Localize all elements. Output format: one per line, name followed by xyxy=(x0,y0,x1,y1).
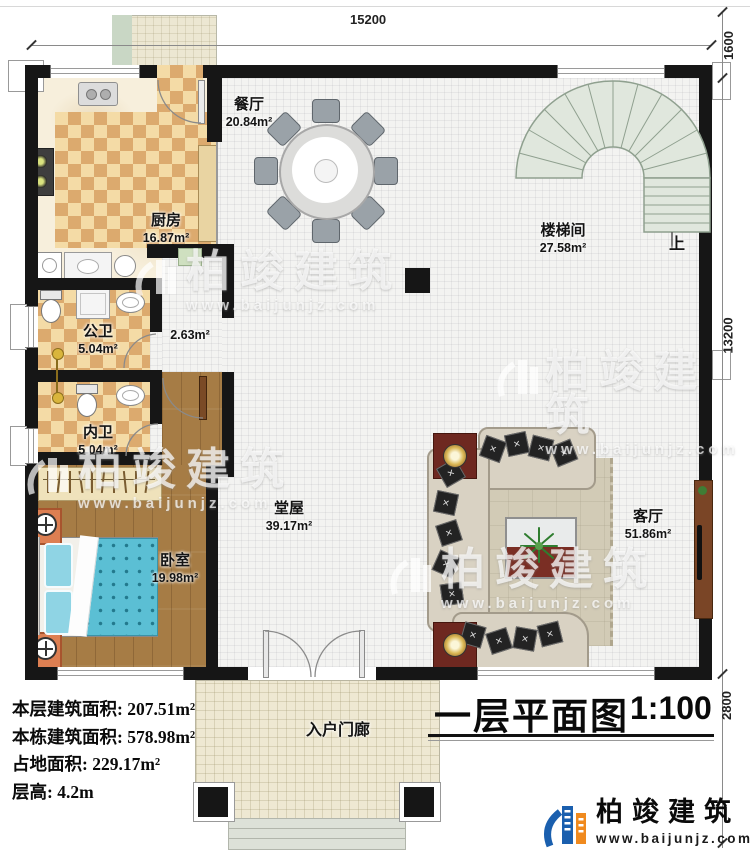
dining-chair xyxy=(254,157,278,185)
entry-door-leaf xyxy=(263,630,269,678)
room-label-kitchen: 厨房16.87m² xyxy=(143,212,190,247)
stat-height: 层高: 4.2m xyxy=(12,779,195,807)
brand-name: 柏竣建筑 xyxy=(596,798,750,828)
window-stairwell-top xyxy=(557,65,665,78)
stat-footprint: 占地面积: 229.17m² xyxy=(12,751,195,779)
table-lamp-icon xyxy=(443,444,467,468)
toilet-icon xyxy=(77,393,97,417)
room-label-porch: 入户门廊 xyxy=(306,722,370,740)
dining-chair xyxy=(374,157,398,185)
kitchen-door-leaf xyxy=(198,80,205,124)
wall-pubbath-right xyxy=(150,290,162,332)
kitchen-entry-tile xyxy=(157,65,203,112)
wall-bedroom-right xyxy=(206,465,218,668)
wall-kitchen-dining xyxy=(207,65,222,142)
table-lamp-icon xyxy=(443,633,467,657)
dining-chair xyxy=(312,219,340,243)
wall-kitchen-bath xyxy=(25,278,162,290)
title-underline-thin xyxy=(428,740,714,741)
stats-block: 本层建筑面积: 207.51m² 本栋建筑面积: 578.98m² 占地面积: … xyxy=(12,696,195,806)
tv-icon xyxy=(697,525,702,580)
dimension-line-right xyxy=(722,12,723,848)
sofa-pillow: ✕ xyxy=(504,431,530,457)
sink-icon xyxy=(116,292,145,313)
wall-bath-divider xyxy=(25,370,162,382)
stairs-up-label: 上 xyxy=(669,236,685,254)
wall-privbath-right xyxy=(150,382,162,424)
kitchen-counter xyxy=(64,252,112,280)
wall-hall-left-upper xyxy=(222,244,234,318)
sink-icon xyxy=(116,385,145,406)
brand-logo: 柏竣建筑 www.baijunjz.com xyxy=(540,798,750,852)
room-label-bedroom: 卧室19.98m² xyxy=(152,552,199,587)
dimension-right-top: 1600 xyxy=(721,31,736,60)
brand-website: www.baijunjz.com xyxy=(596,831,750,846)
brand-logo-icon xyxy=(540,798,588,852)
dimension-top: 15200 xyxy=(350,12,386,27)
wardrobe xyxy=(38,467,162,501)
corridor-floor xyxy=(162,258,222,372)
wall-hall-left-lower xyxy=(222,372,234,472)
coffee-table xyxy=(505,517,577,579)
sofa-pillow: ✕ xyxy=(433,490,459,516)
entry-door-leaf xyxy=(359,630,365,678)
window-living-bottom xyxy=(477,667,655,680)
kitchen-basin xyxy=(114,255,136,277)
towel-rail-knob xyxy=(52,392,64,404)
cabinet-plant-icon xyxy=(698,486,707,495)
room-label-dining: 餐厅20.84m² xyxy=(226,96,273,131)
porch-column xyxy=(404,787,434,817)
stat-building-area: 本栋建筑面积: 578.98m² xyxy=(12,724,195,752)
room-label-public-bath: 公卫5.04m² xyxy=(78,323,118,358)
plan-scale: 1:100 xyxy=(630,690,712,727)
room-label-stairwell: 楼梯间27.58m² xyxy=(540,222,587,257)
window-kitchen-top xyxy=(50,65,140,78)
kitchen-dining-open-line xyxy=(216,142,218,246)
sofa-pillow: ✕ xyxy=(512,626,537,651)
bed-pillow xyxy=(44,543,73,588)
bedroom-door-leaf xyxy=(199,376,207,420)
room-label-living: 客厅51.86m² xyxy=(625,508,672,543)
faucet-icon xyxy=(86,89,97,100)
faucet-icon xyxy=(100,89,111,100)
kitchen-tile-area xyxy=(55,112,216,248)
kitchen-tall-cabinet xyxy=(198,145,217,242)
bedroom-entry-floor xyxy=(162,372,222,467)
floor-plan-canvas: ✕ ✕ ✕ ✕ ✕ ✕ ✕ ✕ ✕ ✕ ✕ ✕ ✕ xyxy=(0,0,750,864)
title-underline-thick xyxy=(428,734,714,737)
window-bedroom-bottom xyxy=(57,667,184,680)
room-label-private-bath: 内卫5.04m² xyxy=(78,424,118,459)
dimension-right-middle: 13200 xyxy=(721,317,736,353)
shower-cabinet xyxy=(76,289,110,319)
dimension-line-top xyxy=(30,45,712,46)
dining-table-center xyxy=(314,159,338,183)
towel-rail-knob xyxy=(52,348,64,360)
dimension-right-bottom: 2800 xyxy=(719,691,734,720)
dining-chair xyxy=(312,99,340,123)
toilet-icon xyxy=(41,299,61,323)
window-private-bath xyxy=(25,428,38,464)
window-public-bath xyxy=(25,306,38,348)
porch-steps xyxy=(228,818,406,850)
porch-column xyxy=(198,787,228,817)
kitchen-washer xyxy=(36,252,62,280)
room-label-hall: 堂屋39.17m² xyxy=(266,500,313,535)
stat-floor-area: 本层建筑面积: 207.51m² xyxy=(12,696,195,724)
room-label-corridor-area: 2.63m² xyxy=(170,326,210,343)
sofa-pillow: ✕ xyxy=(440,582,465,607)
rear-porch-green-strip xyxy=(112,15,132,65)
roof-eave-line xyxy=(0,6,750,7)
green-counter xyxy=(178,248,202,266)
kitchen-sink xyxy=(78,82,118,106)
plan-title: 一层平面图 xyxy=(434,686,629,740)
structural-column xyxy=(405,268,430,293)
